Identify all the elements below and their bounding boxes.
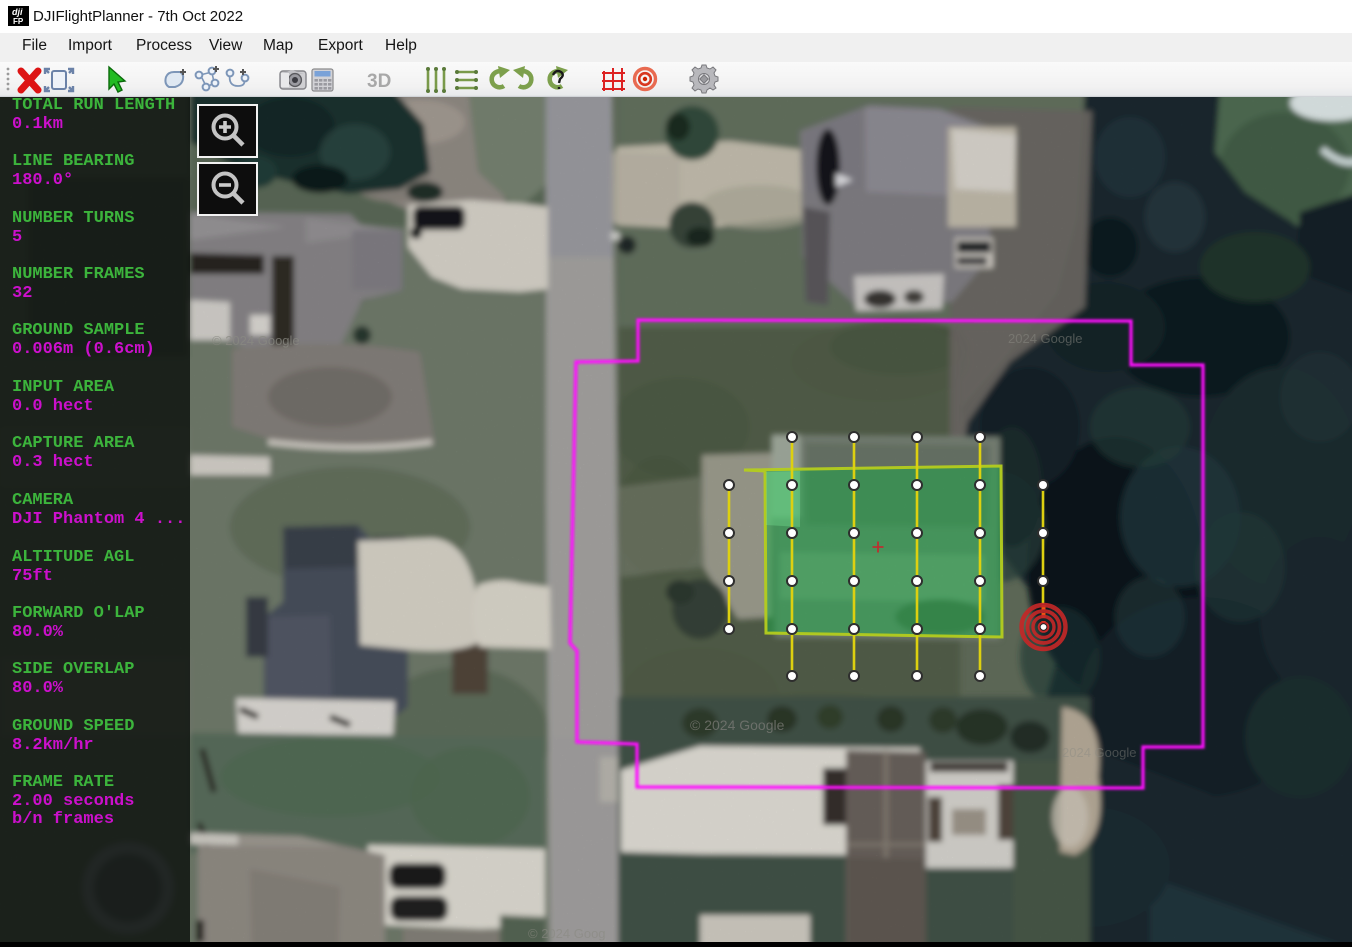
svg-text:dji: dji — [12, 7, 23, 17]
svg-text:FP: FP — [13, 17, 24, 26]
svg-text:3D: 3D — [367, 71, 391, 92]
